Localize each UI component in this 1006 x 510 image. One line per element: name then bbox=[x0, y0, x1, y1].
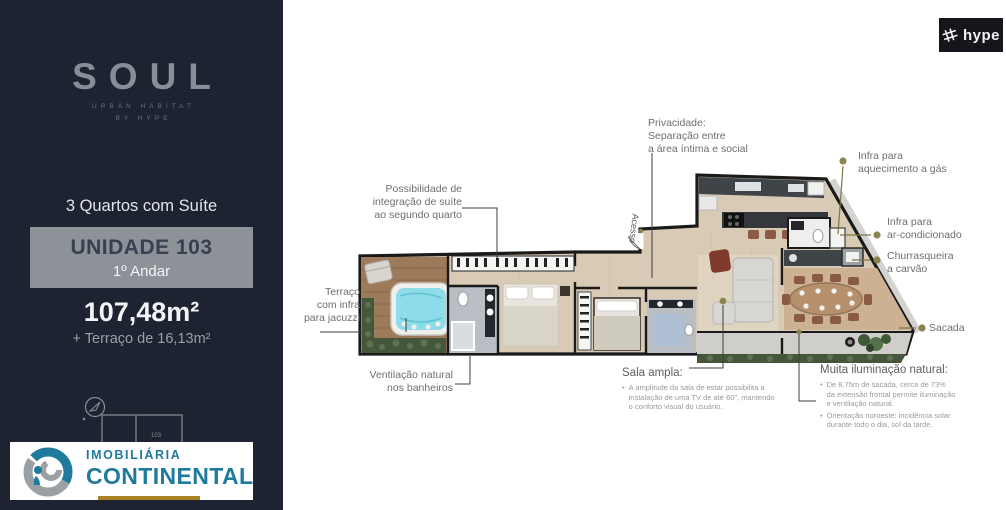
bullet-line: A amplitude da sala de estar possibilita… bbox=[629, 383, 775, 393]
callout-line: com infra bbox=[304, 299, 360, 312]
feature-sala-ampla: Sala ampla: • A amplitude da sala de est… bbox=[622, 367, 775, 412]
bullet-marker: • bbox=[820, 380, 823, 409]
unit-type-label: 3 Quartos com Suíte bbox=[0, 197, 283, 216]
unit-area: 107,48m² bbox=[0, 297, 283, 328]
callout-line: Possibilidade de bbox=[373, 183, 462, 196]
bullet-line: da extensão frontal permite iluminação bbox=[827, 390, 956, 400]
callout-line: a área íntima e social bbox=[648, 143, 748, 156]
brand-tagline-1: URBAN HABITAT bbox=[0, 103, 283, 110]
hype-hash-icon bbox=[942, 27, 958, 43]
callout-barbecue: Churrasqueira a carvão bbox=[887, 250, 954, 276]
keyplan-unit-label: 103 bbox=[151, 433, 162, 439]
callout-line: Terraço bbox=[304, 286, 360, 299]
hype-logo: hype bbox=[939, 18, 1003, 52]
bullet-line: De 8,75m de sacada, cerca de 73% bbox=[827, 380, 956, 390]
callout-line: Infra para bbox=[887, 216, 962, 229]
bullet-line: instalação de uma TV de até 60", mantend… bbox=[629, 393, 775, 403]
terrace-area: + Terraço de 16,13m² bbox=[0, 331, 283, 347]
wardrobe bbox=[452, 256, 574, 271]
callout-line: Privacidade: bbox=[648, 117, 748, 130]
callout-line: ao segundo quarto bbox=[373, 209, 462, 222]
brand-name: SOUL bbox=[0, 56, 283, 98]
unit-number: UNIDADE 103 bbox=[70, 236, 212, 260]
callout-line: Infra para bbox=[858, 150, 947, 163]
agency-logo: IMOBILIÁRIA CONTINENTAL bbox=[10, 442, 253, 500]
entrance-door: Acesso bbox=[627, 213, 643, 249]
unit-floor: 1º Andar bbox=[113, 263, 170, 280]
ac-infra-closet bbox=[830, 228, 845, 248]
compass-icon bbox=[83, 398, 105, 421]
sidebar: SOUL URBAN HABITAT BY HYPE 3 Quartos com… bbox=[0, 0, 283, 510]
callout-line: Ventilação natural bbox=[370, 369, 453, 382]
unit-number-box: UNIDADE 103 1º Andar bbox=[30, 227, 253, 288]
keyplan-outline: 103 bbox=[102, 415, 182, 445]
callout-line: a carvão bbox=[887, 263, 954, 276]
bullet-line: e ventilação natural. bbox=[827, 399, 956, 409]
feature-bullet: • De 8,75m de sacada, cerca de 73% da ex… bbox=[820, 380, 955, 409]
feature-bullet: • Orientação noroeste: incidência solar … bbox=[820, 411, 955, 430]
bullet-line: durante todo o dia, sol da tarde. bbox=[827, 420, 951, 430]
floorplan-panel: Acesso hype bbox=[283, 0, 1006, 510]
terrace-area-plan bbox=[361, 257, 451, 353]
feature-title: Muita iluminação natural: bbox=[820, 364, 955, 376]
brand-tagline-2: BY HYPE bbox=[0, 115, 283, 122]
callout-line: Churrasqueira bbox=[887, 250, 954, 263]
callout-suite-integration: Possibilidade de integração de suíte ao … bbox=[373, 183, 462, 222]
callout-air-conditioning: Infra para ar-condicionado bbox=[887, 216, 962, 242]
callout-line: Separação entre bbox=[648, 130, 748, 143]
callout-gas-heating: Infra para aquecimento a gás bbox=[858, 150, 947, 176]
callout-line: aquecimento a gás bbox=[858, 163, 947, 176]
callout-privacy: Privacidade: Separação entre a área ínti… bbox=[648, 117, 748, 156]
callout-terrace-jacuzzi: Terraço com infra para jacuzzi bbox=[304, 286, 360, 325]
feature-title: Sala ampla: bbox=[622, 367, 775, 379]
bullet-marker: • bbox=[820, 411, 823, 430]
callout-line: para jacuzzi bbox=[304, 312, 360, 325]
jacuzzi bbox=[391, 283, 451, 335]
agency-name-line1: IMOBILIÁRIA bbox=[86, 448, 254, 462]
soul-logo: SOUL URBAN HABITAT BY HYPE bbox=[0, 56, 283, 122]
callout-bathroom-ventilation: Ventilação natural nos banheiros bbox=[370, 369, 453, 395]
suite-bathroom bbox=[647, 299, 696, 353]
agency-logo-mark bbox=[22, 446, 74, 498]
lavatory bbox=[788, 218, 830, 248]
agency-name-line2: CONTINENTAL bbox=[86, 463, 254, 490]
bullet-line: o conforto visual do usuário. bbox=[629, 402, 775, 412]
feature-bullet: • A amplitude da sala de estar possibili… bbox=[622, 383, 775, 412]
callout-line: ar-condicionado bbox=[887, 229, 962, 242]
bullet-marker: • bbox=[622, 383, 625, 412]
dining-terrace bbox=[782, 268, 912, 330]
balcony bbox=[697, 332, 912, 363]
callout-balcony: Sacada bbox=[929, 322, 965, 335]
bathroom-1 bbox=[449, 287, 497, 353]
agency-gold-underline bbox=[98, 496, 200, 500]
hype-logo-text: hype bbox=[963, 27, 1000, 44]
bedroom-2 bbox=[578, 292, 640, 350]
feature-natural-light: Muita iluminação natural: • De 8,75m de … bbox=[820, 364, 955, 430]
barbecue-grill bbox=[784, 248, 863, 266]
callout-line: nos banheiros bbox=[370, 382, 453, 395]
callout-line: integração de suíte bbox=[373, 196, 462, 209]
bullet-line: Orientação noroeste: incidência solar bbox=[827, 411, 951, 421]
